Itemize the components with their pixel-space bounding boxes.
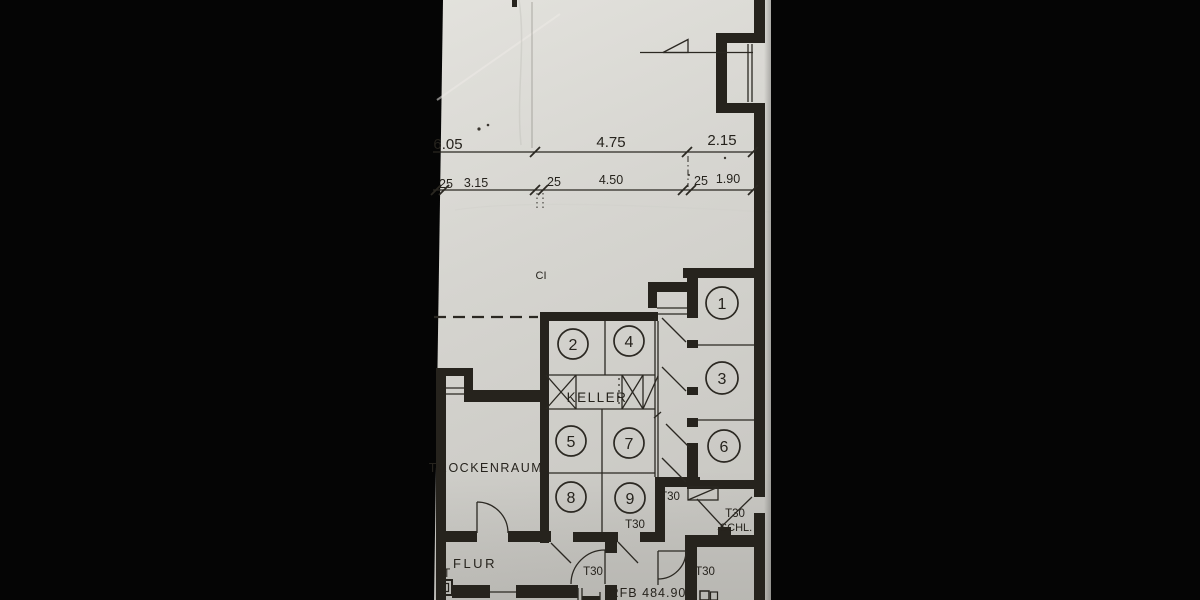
scanned-floorplan-photo: 6.05 4.75 2.15 25 3.15 25 4.50 25 1.90 C…: [0, 0, 1200, 600]
cell-number-8: 8: [567, 490, 576, 507]
label-pt: PT: [436, 568, 451, 580]
cell-number-2: 2: [569, 337, 578, 354]
label-t30-schleuse: T30: [725, 508, 745, 520]
cell-number-5: 5: [567, 434, 576, 451]
room-label-flur: FLUR: [453, 556, 497, 571]
label-t30-cell9-side: T30: [660, 491, 680, 503]
cell-number-4: 4: [625, 334, 634, 351]
label-rfb: RFB 484.90: [610, 586, 687, 600]
dim-2-15: 2.15: [707, 132, 736, 149]
floorplan-svg: 6.05 4.75 2.15 25 3.15 25 4.50 25 1.90 C…: [0, 0, 1200, 600]
cell-number-1: 1: [718, 296, 727, 313]
room-label-trockenraum: TROCKENRAUM: [429, 461, 543, 475]
label-schl: SCHL.: [720, 522, 752, 534]
dim-1-90: 1.90: [716, 172, 740, 186]
dim-3-15: 3.15: [464, 176, 488, 190]
label-t30-cell9-bottom: T30: [625, 519, 645, 531]
label-ci: CI: [536, 270, 547, 282]
dim-25-a: 25: [439, 177, 453, 191]
room-label-keller: KELLER: [567, 390, 628, 405]
dim-4-75: 4.75: [596, 134, 625, 151]
dim-4-50: 4.50: [599, 173, 623, 187]
label-t30-flur: T30: [583, 566, 603, 578]
label-t30-bottom-right: T30: [695, 566, 715, 578]
dim-6-05: 6.05: [433, 136, 462, 153]
dim-25-c: 25: [694, 174, 708, 188]
cell-number-3: 3: [718, 371, 727, 388]
cell-number-7: 7: [625, 436, 634, 453]
cell-number-9: 9: [626, 491, 635, 508]
dim-25-b: 25: [547, 175, 561, 189]
cell-number-6: 6: [720, 439, 729, 456]
